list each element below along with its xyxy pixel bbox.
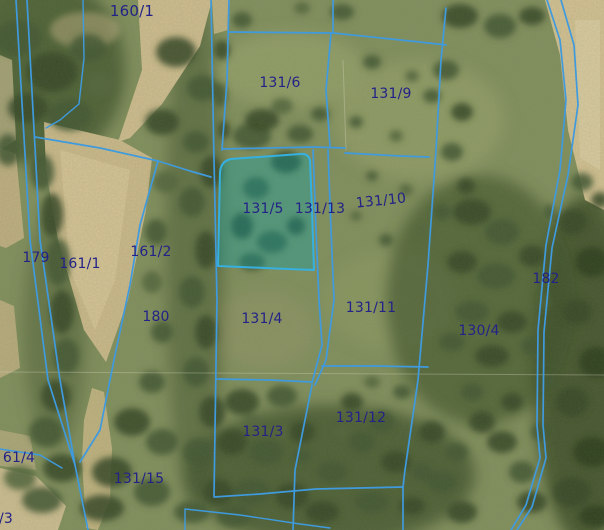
- parcel-label-131-15[interactable]: 131/15: [114, 471, 164, 487]
- parcel-label-131-11[interactable]: 131/11: [346, 300, 396, 316]
- parcel-label-131-9[interactable]: 131/9: [370, 86, 411, 102]
- parcel-label-182[interactable]: 182: [532, 271, 559, 287]
- parcel-label-130-4[interactable]: 130/4: [458, 323, 499, 339]
- parcel-label-180[interactable]: 180: [142, 309, 169, 325]
- parcel-label-131-6[interactable]: 131/6: [259, 75, 300, 91]
- parcel-labels-layer: 160/1131/6131/9131/5131/13131/10179161/1…: [0, 0, 604, 530]
- map-viewport[interactable]: 160/1131/6131/9131/5131/13131/10179161/1…: [0, 0, 604, 530]
- parcel-label-160-1[interactable]: 160/1: [110, 2, 154, 20]
- parcel-label-131-5[interactable]: 131/5: [242, 201, 283, 217]
- parcel-label-61-4[interactable]: 61/4: [3, 450, 35, 466]
- parcel-label-131-4[interactable]: 131/4: [241, 311, 282, 327]
- parcel-label-131-3[interactable]: 131/3: [242, 424, 283, 440]
- parcel-label-131-13[interactable]: 131/13: [295, 201, 345, 217]
- parcel-label-131-10[interactable]: 131/10: [355, 190, 407, 211]
- parcel-label-161-2[interactable]: 161/2: [130, 244, 171, 260]
- parcel-label-161-1[interactable]: 161/1: [59, 256, 100, 272]
- parcel-label-179[interactable]: 179: [22, 250, 49, 266]
- parcel-label--3[interactable]: /3: [0, 511, 13, 527]
- parcel-label-131-12[interactable]: 131/12: [336, 410, 386, 426]
